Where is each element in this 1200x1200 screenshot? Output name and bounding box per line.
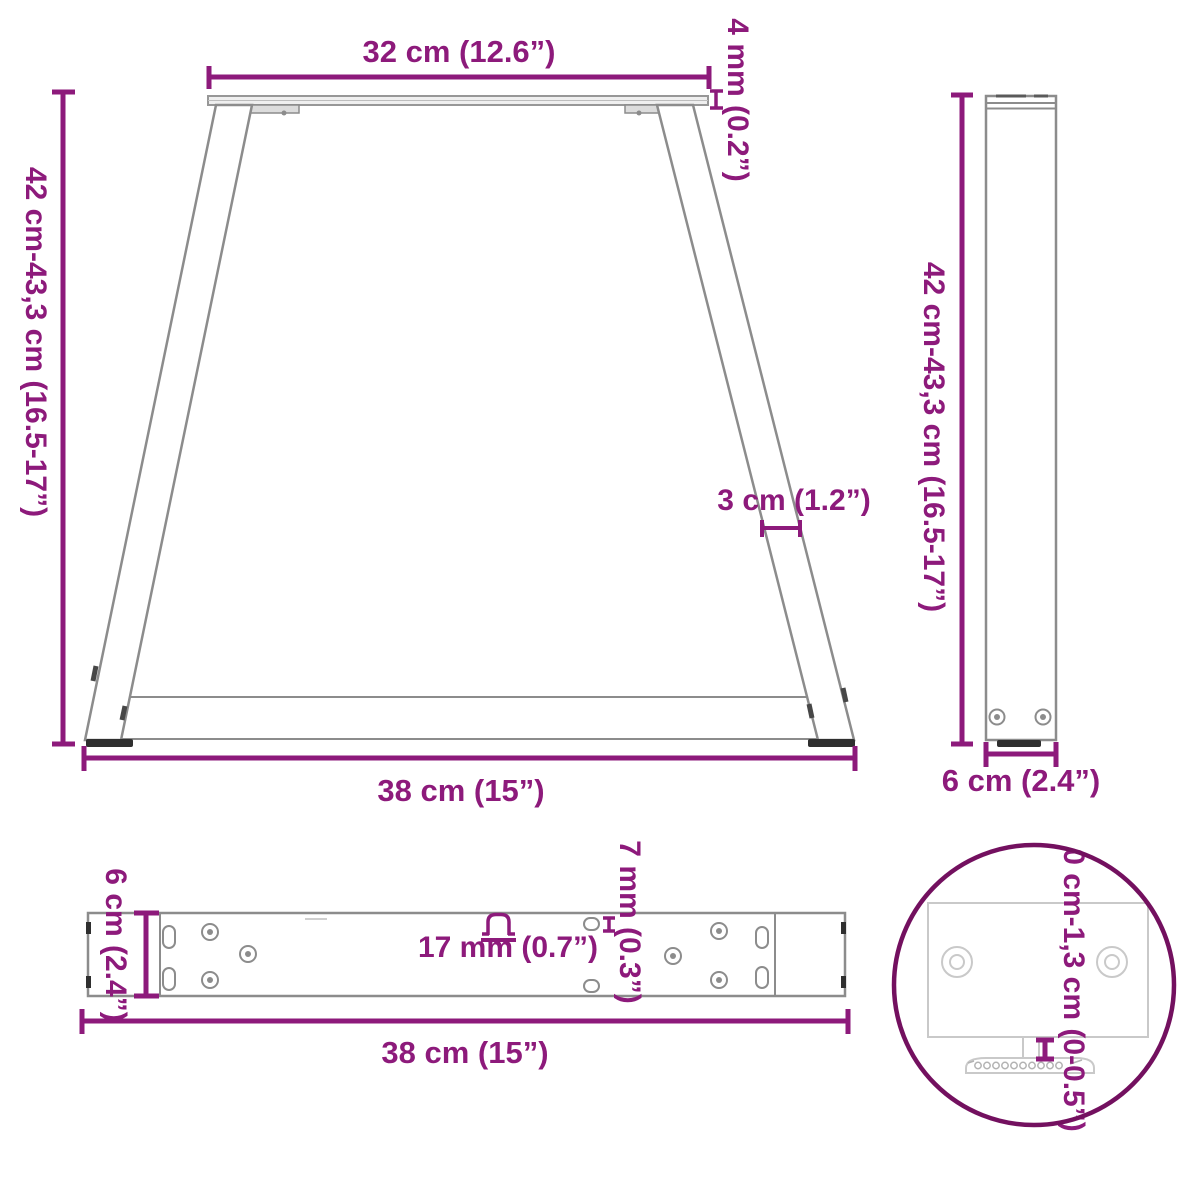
weld-mark bbox=[841, 976, 846, 988]
dim-front-height: 42 cm-43,3 cm (16.5-17”) bbox=[19, 92, 75, 744]
weld-mark bbox=[841, 922, 846, 934]
top-view: 6 cm (2.4”) 17 mm (0.7”) 7 mm (0.3”) 38 … bbox=[82, 840, 848, 1070]
weld-mark bbox=[843, 688, 846, 702]
right-adjustable-foot bbox=[808, 739, 855, 747]
dim-front-height-label: 42 cm-43,3 cm (16.5-17”) bbox=[19, 167, 52, 517]
left-adjustable-foot bbox=[86, 739, 133, 747]
side-adjustable-foot bbox=[997, 740, 1041, 747]
dim-plate-thickness-label: 4 mm (0.2”) bbox=[721, 18, 754, 181]
dim-top-width-label: 32 cm (12.6”) bbox=[363, 34, 556, 69]
dim-side-height-label: 42 cm-43,3 cm (16.5-17”) bbox=[917, 262, 950, 612]
dim-leg-width: 3 cm (1.2”) bbox=[717, 484, 870, 537]
dim-bottom-width-label: 38 cm (15”) bbox=[377, 773, 544, 808]
dim-bottom-width: 38 cm (15”) bbox=[84, 746, 855, 808]
dim-leg-width-label: 3 cm (1.2”) bbox=[717, 484, 870, 517]
adjustment-slot bbox=[584, 980, 599, 992]
dim-side-depth-label: 6 cm (2.4”) bbox=[942, 763, 1101, 798]
dim-side-height: 42 cm-43,3 cm (16.5-17”) bbox=[917, 95, 973, 744]
detail-view: 0 cm-1,3 cm (0-0.5”) bbox=[894, 845, 1174, 1132]
adjustment-slot bbox=[584, 918, 599, 930]
mounting-slot bbox=[163, 968, 175, 990]
dim-slot-width-label: 7 mm (0.3”) bbox=[613, 840, 646, 1003]
mounting-slot bbox=[163, 926, 175, 948]
weld-mark bbox=[93, 666, 96, 681]
weld-mark bbox=[122, 706, 125, 720]
weld-mark bbox=[86, 976, 91, 988]
mounting-slot bbox=[756, 927, 768, 948]
mounting-slot bbox=[756, 967, 768, 988]
dim-plate-thickness: 4 mm (0.2”) bbox=[710, 18, 754, 181]
dim-bar-length-label: 38 cm (15”) bbox=[381, 1035, 548, 1070]
side-leg-body bbox=[986, 96, 1056, 740]
diagram-canvas: 32 cm (12.6”) 4 mm (0.2”) 42 cm-43,3 cm … bbox=[0, 0, 1200, 1200]
dim-foot-adjustment-label: 0 cm-1,3 cm (0-0.5”) bbox=[1057, 848, 1090, 1131]
right-bracket-screw bbox=[637, 111, 642, 116]
dim-slot-length-label: 17 mm (0.7”) bbox=[418, 931, 598, 964]
left-bracket-screw bbox=[282, 111, 287, 116]
dim-bar-length: 38 cm (15”) bbox=[82, 1009, 848, 1070]
table-leg-dimension-diagram: 32 cm (12.6”) 4 mm (0.2”) 42 cm-43,3 cm … bbox=[0, 0, 1200, 1200]
weld-mark bbox=[809, 704, 812, 718]
front-view: 32 cm (12.6”) 4 mm (0.2”) 42 cm-43,3 cm … bbox=[19, 18, 871, 808]
dim-side-depth: 6 cm (2.4”) bbox=[942, 742, 1101, 798]
dim-top-width: 32 cm (12.6”) bbox=[209, 34, 709, 89]
left-leg bbox=[85, 105, 252, 740]
weld-mark bbox=[86, 922, 91, 934]
right-leg bbox=[657, 105, 854, 740]
side-view: 42 cm-43,3 cm (16.5-17”) 6 cm (2.4”) bbox=[917, 95, 1100, 798]
dim-bar-depth-label: 6 cm (2.4”) bbox=[99, 868, 132, 1021]
